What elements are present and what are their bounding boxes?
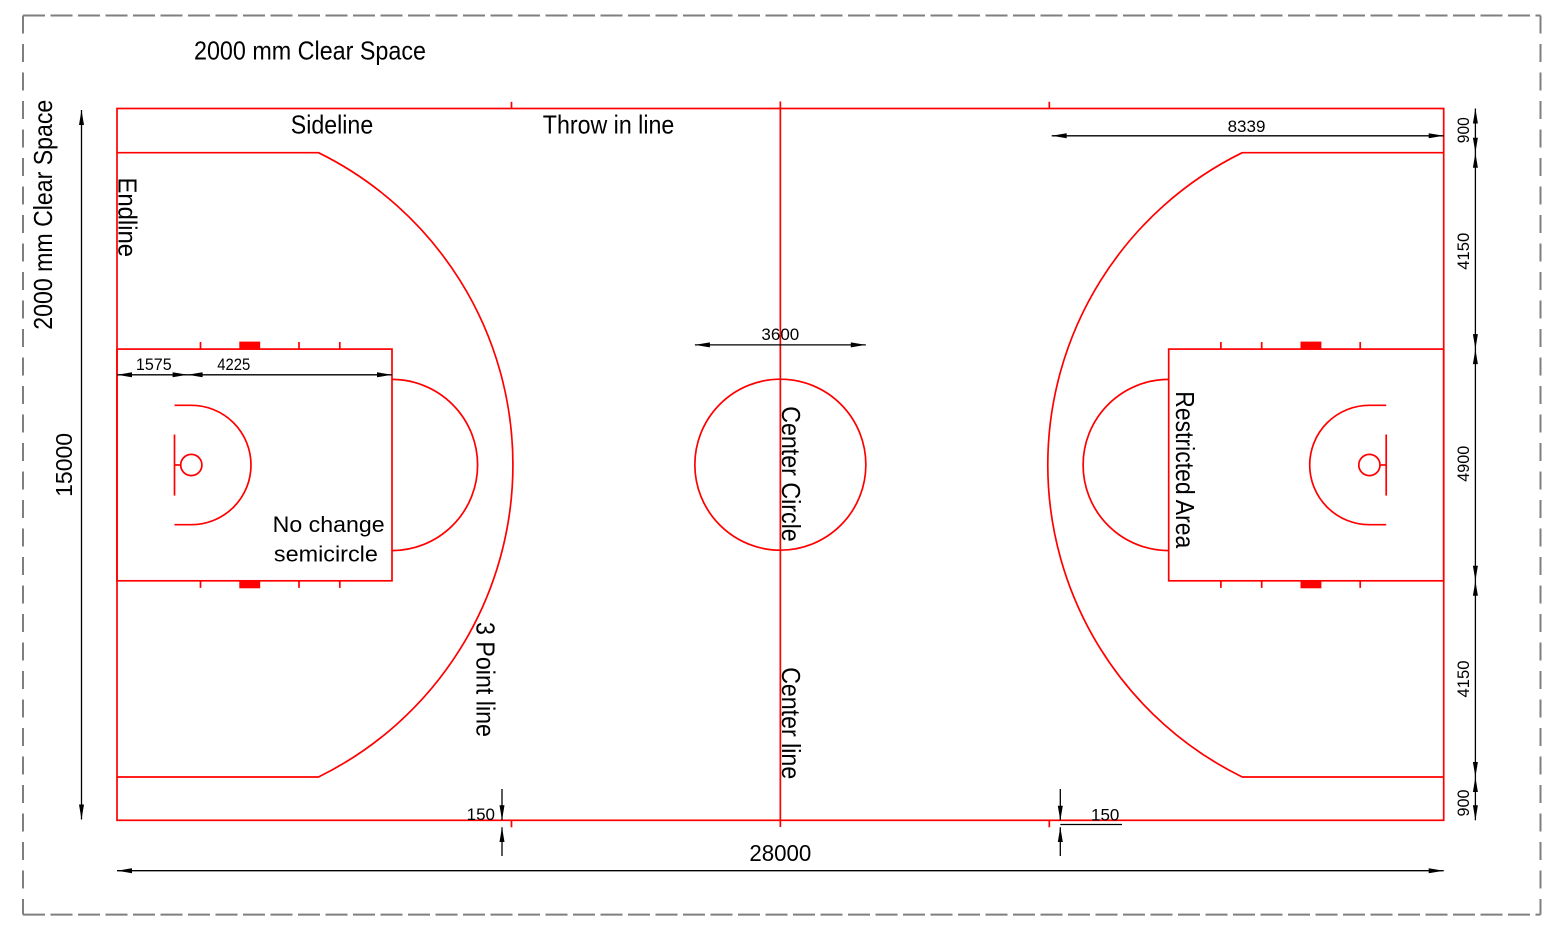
svg-text:Center line: Center line bbox=[776, 667, 806, 779]
svg-text:150: 150 bbox=[1091, 805, 1119, 824]
svg-text:1575: 1575 bbox=[136, 355, 172, 374]
svg-text:2000 mm Clear Space: 2000 mm Clear Space bbox=[28, 100, 58, 330]
svg-text:900: 900 bbox=[1454, 117, 1473, 143]
svg-text:4150: 4150 bbox=[1454, 661, 1473, 698]
svg-text:8339: 8339 bbox=[1228, 117, 1266, 136]
svg-text:15000: 15000 bbox=[51, 433, 77, 497]
svg-text:semicircle: semicircle bbox=[274, 541, 378, 566]
svg-text:No change: No change bbox=[273, 512, 385, 537]
svg-text:3600: 3600 bbox=[761, 325, 799, 344]
svg-text:Sideline: Sideline bbox=[291, 110, 373, 140]
svg-text:150: 150 bbox=[467, 805, 495, 824]
svg-text:4225: 4225 bbox=[217, 355, 250, 374]
svg-text:Throw in line: Throw in line bbox=[543, 110, 675, 140]
svg-text:900: 900 bbox=[1454, 790, 1473, 817]
svg-text:Center Circle: Center Circle bbox=[776, 406, 806, 542]
svg-text:28000: 28000 bbox=[749, 840, 811, 866]
svg-text:3 Point line: 3 Point line bbox=[471, 622, 501, 737]
svg-text:2000 mm Clear Space: 2000 mm Clear Space bbox=[194, 35, 426, 65]
svg-text:4900: 4900 bbox=[1454, 446, 1473, 482]
svg-text:Restricted Area: Restricted Area bbox=[1170, 391, 1200, 548]
svg-text:4150: 4150 bbox=[1454, 233, 1473, 270]
svg-text:Endline: Endline bbox=[113, 178, 143, 258]
